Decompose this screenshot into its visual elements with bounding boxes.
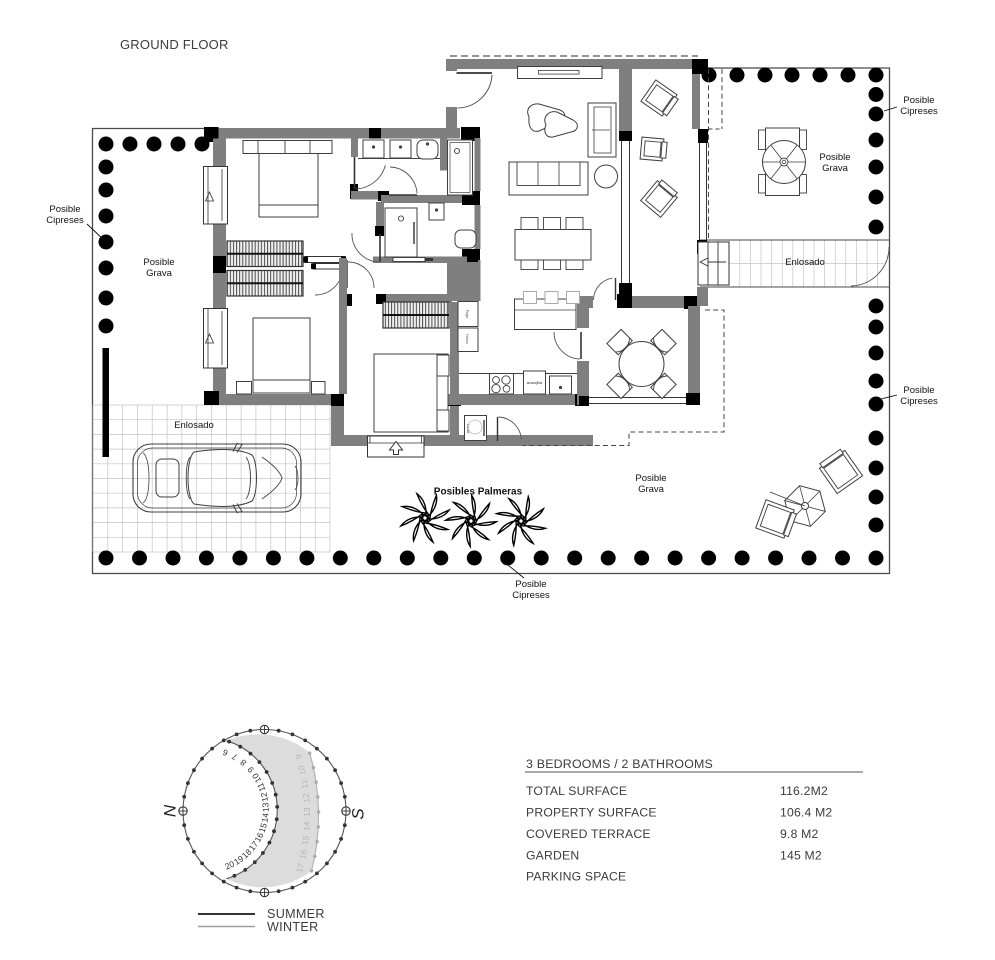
svg-text:Posible: Posible [903,95,934,106]
svg-text:SUMMER: SUMMER [267,907,325,921]
svg-text:9.8 M2: 9.8 M2 [780,827,818,841]
svg-text:12: 12 [301,793,312,804]
svg-text:Frigo: Frigo [465,310,469,318]
svg-text:11: 11 [299,779,310,789]
svg-text:PARKING SPACE: PARKING SPACE [526,870,626,884]
svg-text:145 M2: 145 M2 [780,849,822,863]
svg-text:13: 13 [260,802,270,812]
svg-text:Posible: Posible [515,579,546,590]
svg-text:Enlosado: Enlosado [785,257,825,268]
svg-text:Enlosado: Enlosado [174,420,214,431]
svg-text:Posible: Posible [903,385,934,396]
svg-text:Posibles Palmeras: Posibles Palmeras [434,487,523,498]
svg-text:Posible: Posible [819,152,850,163]
svg-text:3 BEDROOMS / 2 BATHROOMS: 3 BEDROOMS / 2 BATHROOMS [526,757,713,771]
svg-text:Grava: Grava [638,484,665,495]
svg-text:Horno: Horno [465,334,469,343]
svg-text:15: 15 [300,835,311,846]
svg-text:lavavajillas: lavavajillas [527,381,543,385]
svg-text:S: S [348,808,367,820]
svg-text:TOTAL SURFACE: TOTAL SURFACE [526,784,627,798]
svg-text:Grava: Grava [146,268,173,279]
svg-text:Cipreses: Cipreses [900,106,938,117]
svg-text:N: N [160,804,179,817]
svg-text:WINTER: WINTER [267,920,318,934]
svg-text:14: 14 [301,821,311,831]
svg-text:Posible: Posible [143,257,174,268]
svg-text:Posible: Posible [49,204,80,215]
svg-text:GROUND FLOOR: GROUND FLOOR [120,37,229,52]
svg-text:Cipreses: Cipreses [512,590,550,601]
svg-text:Cipreses: Cipreses [900,396,938,407]
svg-text:Grava: Grava [822,163,849,174]
svg-text:116.2M2: 116.2M2 [780,784,828,798]
svg-text:Posible: Posible [635,473,666,484]
svg-text:14: 14 [259,812,270,823]
svg-text:13: 13 [302,807,312,817]
svg-text:COVERED TERRACE: COVERED TERRACE [526,827,651,841]
svg-text:106.4 M2: 106.4 M2 [780,806,832,820]
svg-text:GARDEN: GARDEN [526,849,579,863]
svg-text:PROPERTY SURFACE: PROPERTY SURFACE [526,806,657,820]
svg-text:Cipreses: Cipreses [46,215,84,226]
